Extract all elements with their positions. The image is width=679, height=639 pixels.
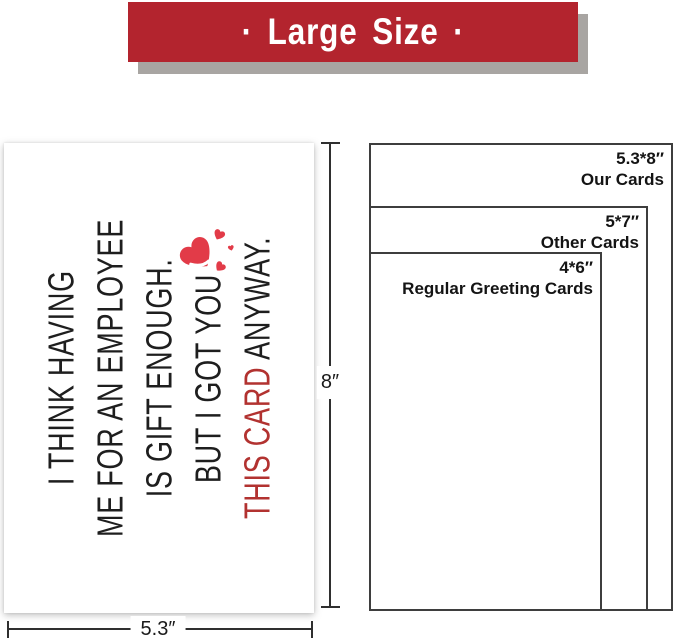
- regular-cards-label: 4*6″ Regular Greeting Cards: [402, 257, 593, 299]
- width-dimension-label: 5.3″: [131, 616, 186, 639]
- message-line-3: IS GIFT ENOUGH.: [135, 143, 184, 613]
- greeting-card: I THINK HAVING ME FOR AN EMPLOYEE IS GIF…: [4, 143, 314, 613]
- banner-label: · Large Size ·: [242, 11, 465, 53]
- message-line-5: THIS CARD ANYWAY.: [233, 143, 282, 613]
- card-message: I THINK HAVING ME FOR AN EMPLOYEE IS GIF…: [37, 143, 282, 613]
- regular-cards-rect: 4*6″ Regular Greeting Cards: [369, 252, 602, 611]
- other-cards-label: 5*7″ Other Cards: [541, 211, 639, 253]
- width-dimension-line: 5.3″: [7, 628, 313, 630]
- message-line-1: I THINK HAVING: [37, 143, 86, 613]
- height-dimension-label: 8″: [317, 366, 343, 399]
- our-cards-name: Our Cards: [581, 169, 664, 190]
- this-card-accent: THIS CARD: [237, 367, 278, 519]
- our-cards-size: 5.3*8″: [581, 148, 664, 169]
- regular-cards-name: Regular Greeting Cards: [402, 278, 593, 299]
- regular-cards-size: 4*6″: [402, 257, 593, 278]
- other-cards-size: 5*7″: [541, 211, 639, 232]
- message-line-2: ME FOR AN EMPLOYEE: [86, 143, 135, 613]
- large-size-banner: · Large Size ·: [128, 2, 578, 62]
- product-size-infographic: · Large Size · I THINK HAVING ME FOR AN …: [0, 0, 679, 639]
- hearts-cluster-icon: [178, 227, 242, 289]
- height-dimension-line: 8″: [329, 144, 331, 608]
- message-line-4: BUT I GOT YOU: [184, 143, 233, 613]
- anyway-text: ANYWAY.: [237, 237, 278, 367]
- other-cards-name: Other Cards: [541, 232, 639, 253]
- our-cards-label: 5.3*8″ Our Cards: [581, 148, 664, 190]
